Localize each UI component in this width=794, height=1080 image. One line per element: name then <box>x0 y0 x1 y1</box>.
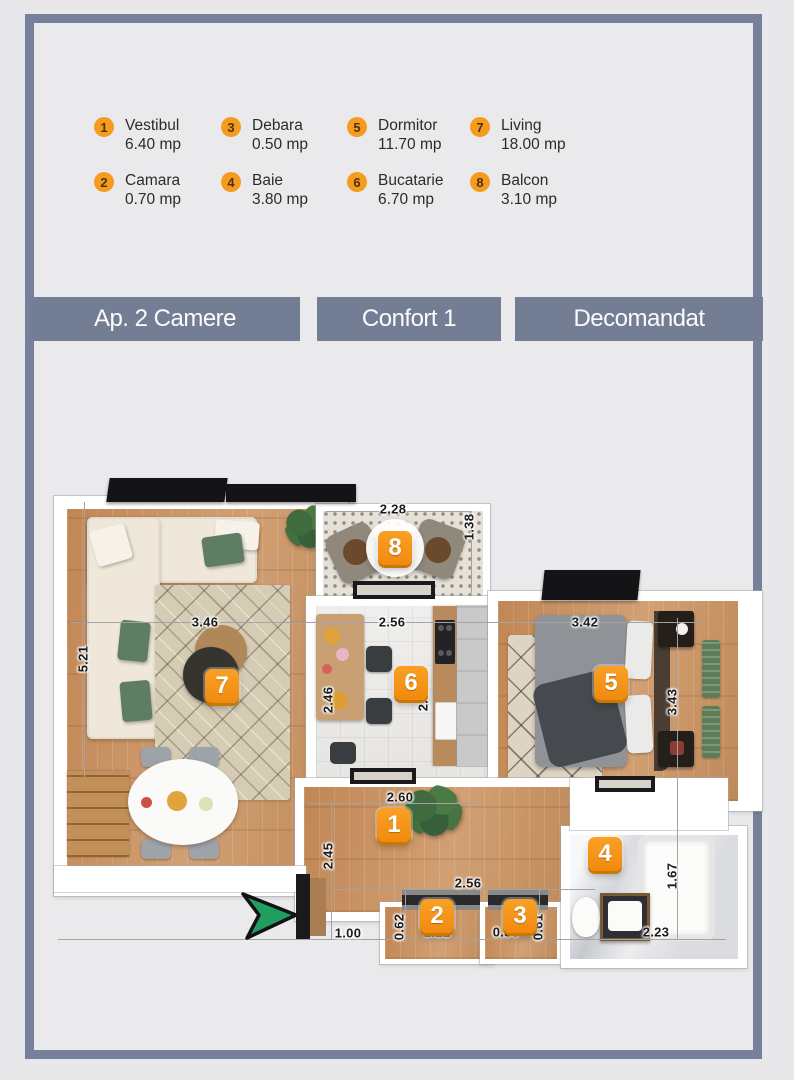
legend-room-name: Camara <box>125 171 181 190</box>
legend-room-area: 6.40 mp <box>125 135 181 154</box>
legend-room-area: 6.70 mp <box>378 190 443 209</box>
living-window <box>226 484 356 502</box>
plan-badge-vestibul: 1 <box>377 808 411 842</box>
plan-badge-bucatarie: 6 <box>394 666 428 700</box>
legend-number-badge: 1 <box>94 117 114 137</box>
kitchen-plate <box>322 664 332 674</box>
bedroom-shelf-decor <box>702 706 720 758</box>
dim-vestibule-width: 2.60 <box>387 790 414 805</box>
bed-pillow <box>625 620 654 679</box>
kitchen-plate <box>336 648 349 661</box>
toilet <box>572 897 600 937</box>
legend-room-area: 0.50 mp <box>252 135 308 154</box>
balcony-door <box>353 581 435 599</box>
stove-burner <box>438 625 444 631</box>
dimension-line <box>84 502 85 778</box>
stairs <box>67 771 129 857</box>
legend-room-name: Bucatarie <box>378 171 443 190</box>
title-bar-apartment: Ap. 2 Camere <box>30 297 300 341</box>
legend-number-badge: 5 <box>347 117 367 137</box>
dim-balcony-width: 2.28 <box>380 502 407 517</box>
entrance-door-leaf <box>310 878 326 936</box>
legend-room-area: 18.00 mp <box>501 135 566 154</box>
kitchen-chair <box>330 742 356 764</box>
legend-number-badge: 8 <box>470 172 490 192</box>
sofa-pillow-green <box>119 680 152 722</box>
stove-burner <box>446 625 452 631</box>
dim-hall-width: 2.56 <box>455 876 482 891</box>
sofa-pillow-green <box>201 532 245 567</box>
legend-item-vestibul: 1 Vestibul6.40 mp <box>94 116 221 154</box>
legend-item-baie: 4 Baie3.80 mp <box>221 171 347 209</box>
bedroom-door <box>595 776 655 792</box>
legend-room-area: 0.70 mp <box>125 190 181 209</box>
plan-badge-living: 7 <box>205 669 239 703</box>
bedroom-window <box>541 570 640 600</box>
legend-room-area: 11.70 mp <box>378 135 441 154</box>
stove-burner <box>438 650 444 656</box>
stove-burner <box>446 650 452 656</box>
plan-badge-balcon: 8 <box>378 531 412 565</box>
dim-bath-width: 2.23 <box>643 925 670 940</box>
kitchen-chair <box>366 646 392 672</box>
kitchen-chair <box>366 698 392 724</box>
legend-item-dormitor: 5 Dormitor11.70 mp <box>347 116 470 154</box>
legend-item-debara: 3 Debara0.50 mp <box>221 116 347 154</box>
legend: 1 Vestibul6.40 mp 2 Camara0.70 mp 3 Deba… <box>94 116 570 209</box>
legend-room-name: Living <box>501 116 566 135</box>
bed-pillow <box>625 694 654 753</box>
dim-bedroom-height: 3.43 <box>665 689 680 716</box>
dining-plate <box>199 797 213 811</box>
sink <box>608 901 642 931</box>
entrance-arrow-icon <box>238 890 300 942</box>
dining-plate <box>141 797 152 808</box>
dim-vestibule-height: 2.45 <box>321 843 336 870</box>
kitchen-sink <box>435 702 457 740</box>
legend-room-name: Dormitor <box>378 116 441 135</box>
kitchen-door <box>350 768 416 784</box>
plan-badge-debara: 3 <box>503 899 537 933</box>
legend-room-name: Balcon <box>501 171 557 190</box>
dim-bedroom-width: 3.42 <box>572 615 599 630</box>
wall-bottom-left <box>54 866 306 892</box>
bedroom-shelf-decor <box>702 640 720 698</box>
title-bar-apartment-label: Ap. 2 Camere <box>94 305 236 333</box>
title-bar-layout-label: Decomandat <box>573 305 704 333</box>
legend-number-badge: 7 <box>470 117 490 137</box>
floorplan: 2.28 1.38 3.46 5.21 2.56 3.42 2.46 2.55 … <box>50 478 734 974</box>
dim-bottom-left: 1.00 <box>335 926 362 941</box>
legend-number-badge: 4 <box>221 172 241 192</box>
plan-badge-camara: 2 <box>420 899 454 933</box>
living-window <box>106 478 227 502</box>
legend-item-living: 7 Living18.00 mp <box>470 116 570 154</box>
dim-camara-depth: 0.62 <box>392 914 407 941</box>
legend-number-badge: 3 <box>221 117 241 137</box>
dim-living-width: 3.46 <box>192 615 219 630</box>
title-bar-layout: Decomandat <box>515 297 763 341</box>
legend-room-area: 3.80 mp <box>252 190 308 209</box>
dim-balcony-depth: 1.38 <box>462 514 477 541</box>
dim-bath-height: 1.67 <box>665 863 680 890</box>
legend-room-area: 3.10 mp <box>501 190 557 209</box>
dim-kitchen-left: 2.46 <box>321 687 336 714</box>
legend-number-badge: 2 <box>94 172 114 192</box>
legend-room-name: Baie <box>252 171 308 190</box>
sofa-pillow-green <box>117 620 151 663</box>
legend-item-balcon: 8 Balcon3.10 mp <box>470 171 570 209</box>
dining-plate <box>167 791 187 811</box>
dim-living-height: 5.21 <box>76 646 91 673</box>
title-bar-comfort: Confort 1 <box>317 297 501 341</box>
legend-item-bucatarie: 6 Bucatarie6.70 mp <box>347 171 470 209</box>
legend-item-camara: 2 Camara0.70 mp <box>94 171 221 209</box>
legend-room-name: Vestibul <box>125 116 181 135</box>
legend-room-name: Debara <box>252 116 308 135</box>
plan-badge-baie: 4 <box>588 837 622 871</box>
kitchen-plate <box>324 628 340 644</box>
dimension-line <box>677 618 678 939</box>
legend-number-badge: 6 <box>347 172 367 192</box>
dim-kitchen-width: 2.56 <box>379 615 406 630</box>
kitchen-cabinets <box>457 606 487 766</box>
plan-badge-dormitor: 5 <box>594 666 628 700</box>
dimension-line <box>331 803 332 940</box>
title-bar-comfort-label: Confort 1 <box>362 305 456 333</box>
